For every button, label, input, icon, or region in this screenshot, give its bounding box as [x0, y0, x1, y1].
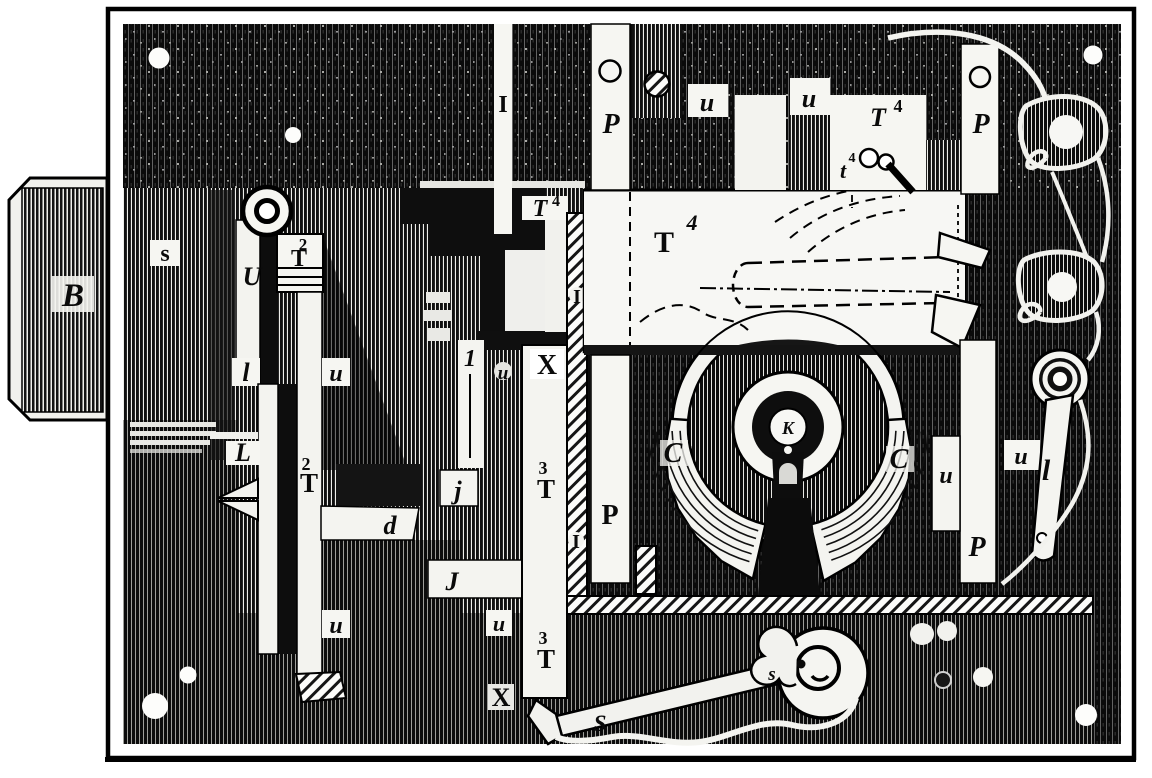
svg-text:s: s	[767, 664, 775, 685]
svg-text:l: l	[242, 358, 250, 387]
svg-text:u: u	[329, 361, 342, 387]
svg-text:3: 3	[539, 458, 548, 478]
svg-text:T: T	[870, 103, 887, 132]
svg-text:C: C	[890, 444, 909, 475]
svg-text:1: 1	[464, 346, 476, 372]
svg-text:u: u	[700, 88, 714, 117]
svg-text:2: 2	[302, 454, 311, 474]
svg-text:u: u	[329, 613, 342, 639]
svg-text:T: T	[533, 196, 549, 222]
svg-text:P: P	[601, 109, 620, 140]
svg-text:J: J	[445, 567, 460, 596]
svg-text:P: P	[601, 500, 618, 531]
svg-text:I: I	[572, 531, 580, 553]
svg-text:X: X	[492, 683, 511, 712]
svg-text:3: 3	[539, 628, 548, 648]
svg-text:d: d	[384, 511, 398, 540]
svg-text:s: s	[160, 241, 169, 267]
svg-text:L: L	[234, 438, 251, 467]
svg-text:4: 4	[894, 96, 903, 116]
svg-text:T: T	[537, 644, 555, 674]
svg-text:U: U	[243, 262, 263, 291]
svg-text:I: I	[498, 92, 507, 118]
svg-text:B: B	[61, 278, 84, 314]
svg-text:T: T	[537, 474, 555, 504]
svg-text:T: T	[654, 226, 674, 259]
svg-text:S: S	[594, 711, 607, 736]
svg-text:C: C	[664, 438, 683, 469]
svg-text:u: u	[493, 611, 505, 636]
svg-text:4: 4	[849, 151, 856, 166]
svg-text:P: P	[971, 109, 990, 140]
svg-text:l: l	[1042, 454, 1051, 487]
svg-text:u: u	[939, 463, 952, 489]
svg-text:P: P	[967, 532, 986, 563]
svg-text:4: 4	[686, 210, 698, 235]
svg-text:u: u	[802, 84, 816, 113]
svg-text:u: u	[498, 363, 509, 384]
svg-text:2: 2	[299, 235, 308, 254]
svg-text:4: 4	[552, 193, 560, 210]
svg-text:K: K	[781, 418, 796, 438]
svg-text:t: t	[840, 158, 847, 183]
svg-text:I: I	[573, 286, 581, 308]
svg-text:X: X	[537, 350, 557, 381]
svg-text:u: u	[1014, 444, 1027, 470]
